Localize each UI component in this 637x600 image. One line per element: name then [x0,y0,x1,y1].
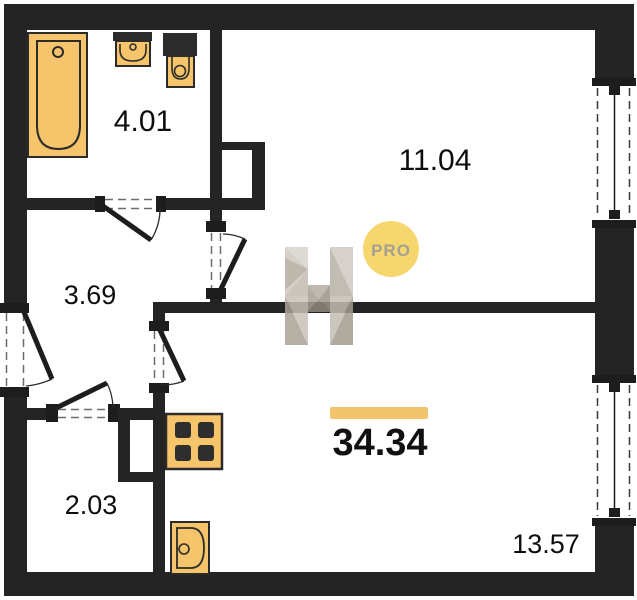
floor-plan: PRO [0,0,637,600]
room-area-label-bathroom: 4.01 [98,106,188,138]
bathtub-icon [28,33,87,157]
kitchen-sink-icon [171,522,209,574]
stove-icon [166,414,222,469]
total-area-label: 34.34 [326,423,434,463]
brand-logo-watermark-icon [285,247,353,345]
pro-badge: PRO [363,221,419,277]
room-area-label-hallway: 3.69 [45,279,135,311]
washbasin-icon [113,32,152,66]
toilet-icon [163,33,197,87]
window [598,88,630,516]
room-area-label-living-kitchen: 13.57 [496,528,596,560]
room-area-label-closet: 2.03 [46,489,136,521]
total-area-accent-bar [330,407,428,419]
room-area-label-bedroom: 11.04 [385,145,485,177]
pro-badge-label: PRO [371,241,411,260]
